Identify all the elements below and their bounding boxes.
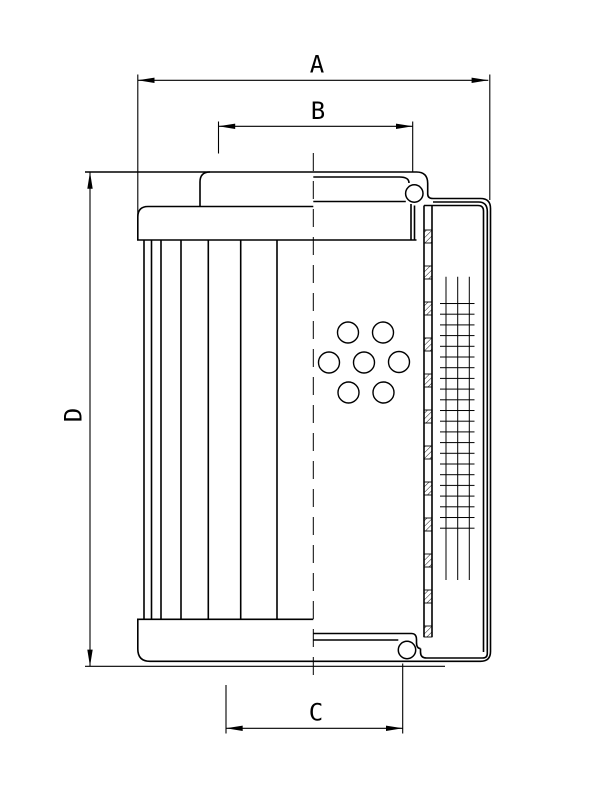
tube-hatch-segment: [424, 302, 432, 315]
arrow-up-icon: [87, 172, 92, 189]
dimension-a-label: A: [310, 51, 325, 79]
tube-hatch-segment: [424, 410, 432, 423]
bottom-end-cap: [313, 634, 420, 659]
perforation-hole: [373, 382, 394, 403]
tube-hatch-segment: [424, 266, 432, 279]
drawing-canvas: A B D C: [0, 0, 612, 792]
perforation-holes: [319, 322, 410, 403]
filter-element-technical-drawing: A B D C: [0, 0, 612, 792]
tube-hatch-segment: [424, 230, 432, 243]
arrow-right-icon: [396, 124, 413, 129]
dimension-b-label: B: [311, 97, 325, 125]
tube-hatch-segment: [424, 338, 432, 351]
perforation-hole: [338, 322, 359, 343]
dimension-c: C: [226, 664, 403, 734]
arrow-right-icon: [386, 726, 403, 731]
tube-hatch-segment: [424, 374, 432, 387]
tube-hatch-segment: [424, 482, 432, 495]
perforation-hole: [319, 352, 340, 373]
perforation-hole: [373, 322, 394, 343]
perforation-hole: [389, 352, 410, 373]
pleated-filter-media: [144, 240, 277, 619]
perforation-hole: [354, 352, 375, 373]
tube-hatch-segment: [424, 554, 432, 567]
top-o-ring: [406, 185, 423, 202]
wire-mesh: [440, 277, 475, 580]
tube-hatch-segment: [424, 626, 432, 637]
top-cap-left-outline: [138, 207, 417, 241]
tube-hatch-segment: [424, 446, 432, 459]
tube-hatch-segment: [424, 518, 432, 531]
arrow-left-icon: [226, 726, 243, 731]
dimension-c-label: C: [309, 699, 323, 727]
top-cap-bump-edge: [200, 172, 210, 207]
perforation-hole: [338, 382, 359, 403]
dimension-d-label: D: [60, 408, 88, 422]
dimension-d: D: [60, 172, 446, 666]
bottom-o-ring: [398, 641, 415, 658]
top-cap-inner-line: [313, 177, 409, 183]
arrow-left-icon: [138, 78, 155, 83]
arrow-left-icon: [219, 124, 236, 129]
dimension-b: B: [219, 97, 413, 172]
top-end-cap: [138, 172, 423, 240]
arrow-down-icon: [87, 650, 92, 667]
support-tube: [424, 206, 432, 638]
arrow-right-icon: [472, 78, 489, 83]
tube-hatch-segment: [424, 590, 432, 603]
